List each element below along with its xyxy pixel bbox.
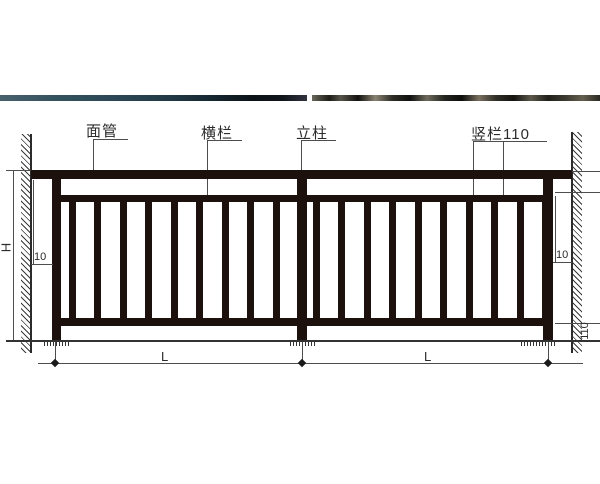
picket	[364, 201, 371, 319]
photo-strip-right	[312, 95, 600, 101]
anchor-ticks-left	[44, 342, 70, 346]
span-right-label: L	[424, 349, 431, 364]
picket	[196, 201, 203, 319]
picket-panel-left	[61, 201, 305, 319]
picket	[415, 201, 422, 319]
picket	[222, 201, 229, 319]
leader-post-v	[301, 140, 302, 172]
picket-panel-right	[307, 201, 551, 319]
wall-line-left	[30, 134, 32, 353]
leader-vertical-bar-h	[473, 141, 547, 142]
dim-marker-left	[51, 359, 59, 367]
picket	[440, 201, 447, 319]
label-top-rail: 面管	[86, 120, 118, 141]
anchor-ticks-middle	[290, 342, 316, 346]
picket	[247, 201, 254, 319]
h-dim-label: H	[0, 240, 14, 256]
picket	[298, 201, 305, 319]
picket	[542, 201, 549, 319]
picket	[466, 201, 473, 319]
leader-vertical-bar-v1	[473, 141, 474, 196]
picket	[313, 201, 320, 319]
picket	[120, 201, 127, 319]
picket	[69, 201, 76, 319]
gap-left-dim-line	[31, 264, 53, 265]
picket	[273, 201, 280, 319]
gap-right-label: 10	[556, 249, 568, 261]
picket	[517, 201, 524, 319]
leader-horizontal-rail-v	[207, 140, 208, 196]
picket	[491, 201, 498, 319]
bottom-rail-bar	[52, 318, 552, 326]
leader-top-rail-h	[93, 139, 128, 140]
leader-top-rail-v	[93, 139, 94, 171]
h-dim-tick-top	[6, 170, 31, 171]
ext-line-bottom-rail	[555, 323, 600, 324]
leader-vertical-bar-v2	[503, 141, 504, 196]
dim-marker-middle	[298, 359, 306, 367]
leader-post-h	[301, 140, 336, 141]
picket	[145, 201, 152, 319]
ext-line-top-rail	[572, 171, 600, 172]
span-left-label: L	[161, 349, 168, 364]
picket	[94, 201, 101, 319]
leader-horizontal-rail-h	[207, 140, 242, 141]
gap-left-label: 10	[34, 251, 46, 263]
picket	[338, 201, 345, 319]
wall-hatch-left	[21, 134, 30, 353]
dim-marker-right	[544, 359, 552, 367]
photo-strip-left	[0, 95, 307, 101]
picket	[389, 201, 396, 319]
anchor-ticks-right	[521, 342, 557, 346]
gap-right-dim-line	[553, 262, 572, 263]
railing-drawing: 面管 横栏 立柱 竖栏110	[0, 0, 600, 484]
span-dim-line	[38, 363, 583, 364]
ext-line-horizontal-rail	[555, 192, 600, 193]
picket	[171, 201, 178, 319]
bottom-clearance-label: 110	[579, 320, 591, 342]
